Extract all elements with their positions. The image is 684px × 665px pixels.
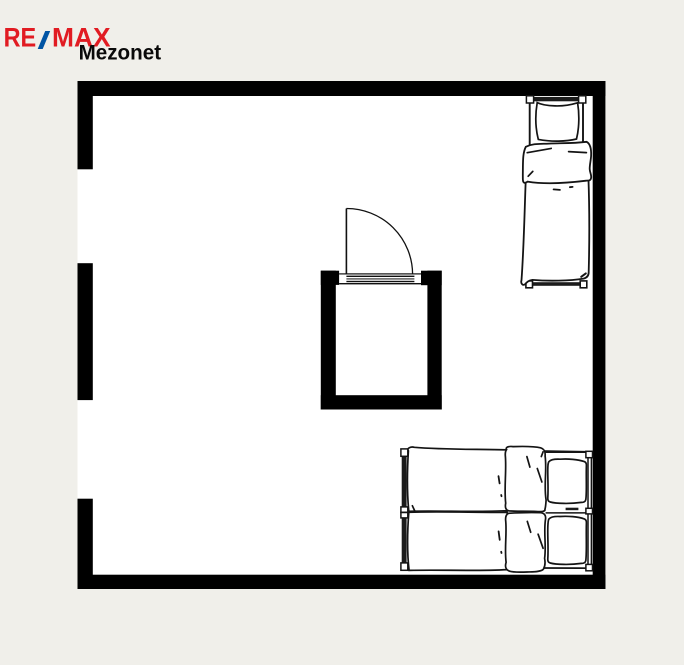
svg-text:Mezonet: Mezonet (79, 42, 162, 65)
svg-text:RE: RE (4, 23, 37, 53)
